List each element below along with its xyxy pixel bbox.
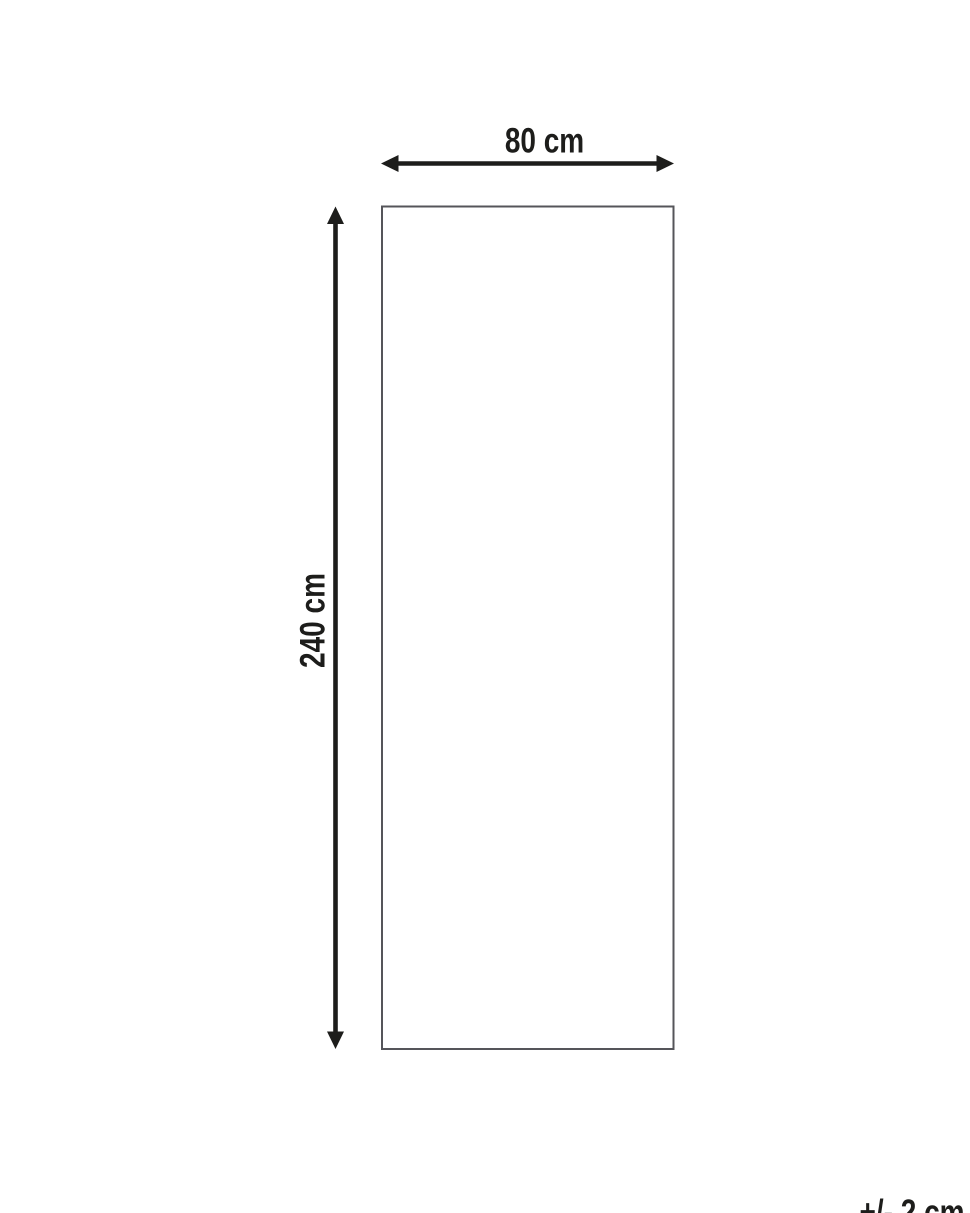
svg-text:240 cm: 240 cm [292, 573, 332, 668]
svg-text:80 cm: 80 cm [505, 120, 584, 160]
svg-text:+/- 2 cm: +/- 2 cm [860, 1192, 965, 1213]
